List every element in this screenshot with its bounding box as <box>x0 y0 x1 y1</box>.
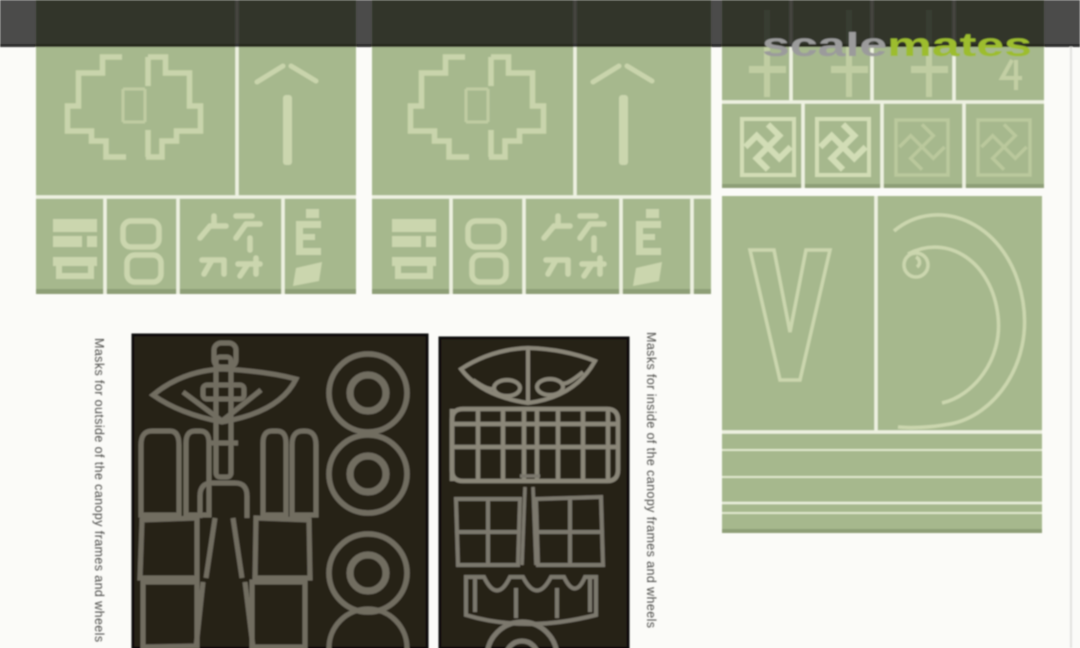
svg-text:Masks for inside of the canopy: Masks for inside of the canopy frames an… <box>644 332 658 628</box>
svg-text:scalemates: scalemates <box>762 26 1032 63</box>
svg-text:Masks for outside of the canop: Masks for outside of the canopy frames a… <box>92 338 106 642</box>
